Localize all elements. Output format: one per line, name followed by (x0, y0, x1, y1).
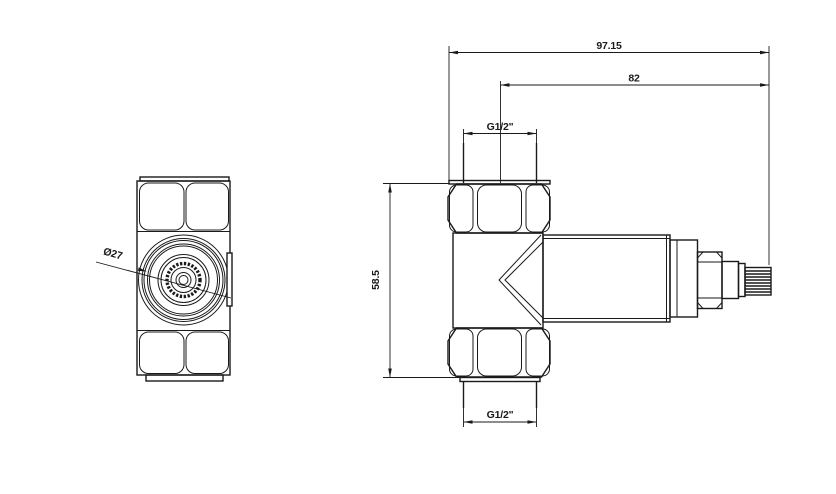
dim-body-height-label: 58.5 (370, 270, 382, 290)
side-view (448, 143, 771, 408)
side-splined-stem (745, 268, 771, 296)
side-stem-washer (739, 264, 746, 297)
side-collar (670, 240, 698, 317)
technical-drawing-canvas: 97.15 82 G1/2" G1/2" 58.5 (0, 0, 836, 494)
side-stem-neck (722, 262, 739, 299)
front-knurl-ring (167, 264, 200, 297)
side-bonnet-cylinder (543, 235, 670, 322)
dim-overall-length-label: 97.15 (596, 40, 622, 52)
front-view (137, 177, 232, 381)
side-bottom-flange (460, 378, 540, 382)
dim-body-height: 58.5 (370, 184, 460, 378)
front-concentric-circles (139, 235, 229, 325)
front-bottom-hex-nut (137, 331, 230, 374)
dim-knob-diameter-label: Ø27 (102, 246, 124, 263)
dim-overall-length: 97.15 (449, 40, 769, 265)
side-bottom-hex-nut (448, 328, 550, 377)
valve-drawing-svg: 97.15 82 G1/2" G1/2" 58.5 (0, 0, 836, 494)
dim-top-thread-label: G1/2" (487, 121, 514, 133)
dim-bottom-thread-label: G1/2" (487, 409, 514, 421)
side-stem-hex (698, 252, 723, 309)
dim-bottom-thread: G1/2" (464, 406, 537, 427)
side-top-hex-nut (448, 184, 550, 233)
dim-stem-to-axis: 82 (501, 73, 770, 184)
front-top-hex-nut (137, 183, 230, 232)
dim-top-thread: G1/2" (464, 121, 537, 145)
front-bottom-washer (146, 375, 223, 381)
dim-stem-to-axis-label: 82 (628, 73, 640, 85)
side-cone-transition (499, 235, 543, 325)
